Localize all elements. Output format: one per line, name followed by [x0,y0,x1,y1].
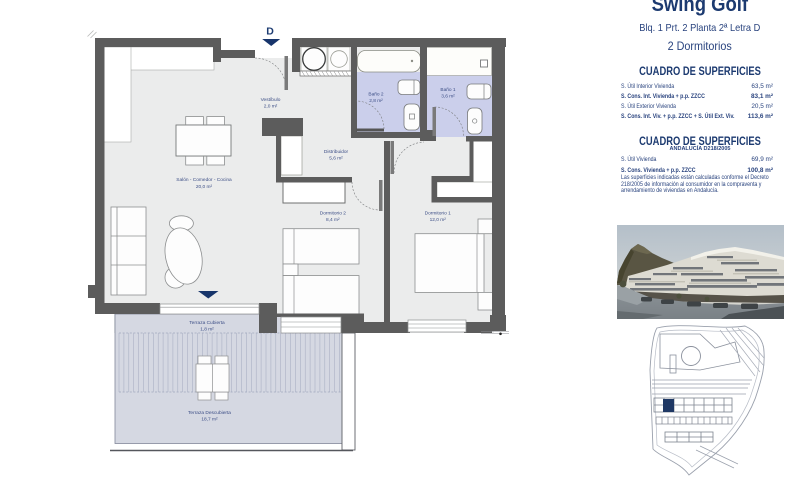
svg-text:Distribuidor: Distribuidor [324,149,349,155]
svg-text:Baño 1: Baño 1 [440,87,456,93]
svg-text:8,4 m²: 8,4 m² [326,217,340,223]
svg-text:Dormitorio 2: Dormitorio 2 [320,211,346,217]
svg-text:12,0 m²: 12,0 m² [430,217,447,223]
svg-text:Terraza Descubierta: Terraza Descubierta [188,410,231,416]
svg-text:18,7 m²: 18,7 m² [201,417,218,423]
svg-text:Vestíbulo: Vestíbulo [261,97,281,103]
svg-text:20,0 m²: 20,0 m² [196,184,213,190]
svg-text:1,8 m²: 1,8 m² [200,327,214,333]
svg-text:Terraza Cubierta: Terraza Cubierta [189,320,225,326]
svg-text:5,6 m²: 5,6 m² [329,156,343,162]
svg-text:Dormitorio 1: Dormitorio 1 [425,211,451,217]
svg-text:2,8 m²: 2,8 m² [369,98,383,104]
svg-text:Baño 2: Baño 2 [368,92,384,98]
svg-text:Salón - Comedor - Cocina: Salón - Comedor - Cocina [176,177,232,183]
svg-text:2,0 m²: 2,0 m² [264,104,278,110]
svg-text:D: D [266,26,274,38]
svg-text:3,6 m²: 3,6 m² [441,94,455,100]
